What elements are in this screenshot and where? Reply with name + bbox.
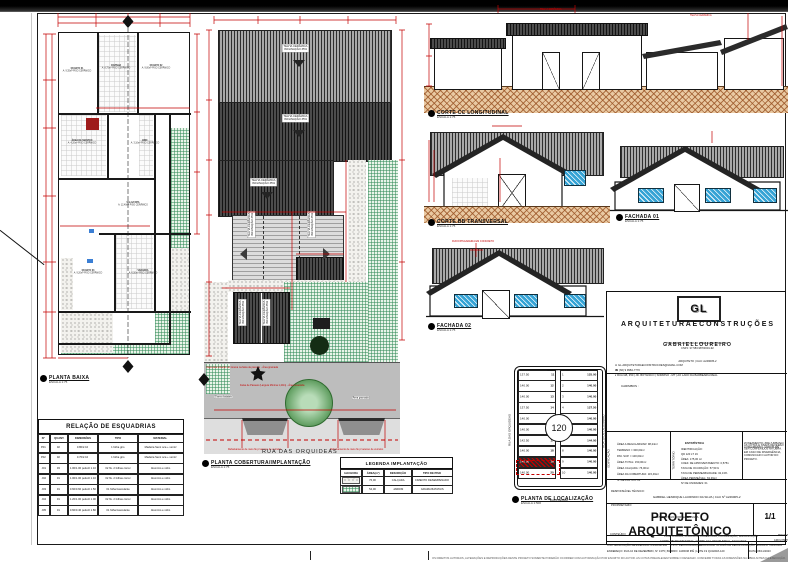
legend-cell: 54,00	[362, 485, 385, 495]
location-lot: 3140.00	[560, 391, 598, 402]
location-lot: 4127.50	[560, 402, 598, 413]
schedule-cell: 1 folha giro	[98, 453, 139, 464]
section-wall	[434, 46, 502, 90]
schedule-cell: 1.00/1.00 peitoril 1.10	[68, 474, 99, 485]
label-corte-bb: CORTE BB TRANSVERSAL ESCALA 1:75	[428, 219, 508, 233]
garden-strip	[171, 128, 189, 248]
schedule-cell: 02	[50, 453, 69, 464]
schedule-cell: 01 folha basculante	[98, 505, 139, 516]
schedule-row: J02011.00/1.00 peitoril 1.1002 fls. 2 fo…	[38, 474, 184, 485]
tiled-floor	[61, 115, 106, 176]
roof-slope-arrow	[261, 192, 273, 199]
office-logo: GL	[677, 296, 721, 322]
paved-area	[61, 313, 113, 353]
schedule-cell: J04	[38, 495, 51, 506]
room-label: QUARTO 01A: 9,35m² PISO CERÂMICO	[63, 67, 92, 73]
schedule-cell: 1.20/1.00 peitoril 1.00	[68, 495, 99, 506]
roof-site-plan	[204, 28, 400, 453]
roof-note-chip: TELHA CERÂMICAINCLINAÇÃO 35%	[262, 299, 270, 326]
street-top: RUA MATRINCHA	[514, 358, 604, 376]
location-lot: 8140.00	[560, 446, 598, 457]
title-block: GL A R Q U I T E T U R A E C O N S T R U…	[606, 291, 786, 545]
schedule-cell: P02	[38, 453, 51, 464]
edificacao-data: ÁREA A REGULARIZAR: 98,24m²TERRENO = 300…	[617, 434, 669, 476]
paved-area	[61, 258, 73, 310]
paved-area	[204, 282, 228, 362]
schedule-body: P01020.80/2.101 folha giroMadeira Semi o…	[38, 442, 184, 516]
label-bullet-icon	[202, 460, 209, 467]
schedule-cell: 02 fls. 2 folhas correr	[98, 495, 139, 506]
quadra-circle: 120	[545, 414, 573, 442]
schedule-cell: 1 folha giro	[98, 442, 139, 453]
schedule-cell: 01 folha basculante	[98, 484, 139, 495]
schedule-table: RELAÇÃO DE ESQUADRIAS NºQUANT.DIMENSÕEST…	[38, 419, 184, 516]
schedule-cell: 0.60/0.60 peitoril 1.50	[68, 484, 99, 495]
label-planta-baixa: PLANTA BAIXA ESCALA 1:75	[40, 375, 89, 389]
schedule-cell: J03	[38, 484, 51, 495]
elevation-01	[610, 136, 788, 214]
room-label: COZINHAA: 8,75m² PISO CERÂMICO	[102, 64, 131, 70]
section-bb	[424, 122, 610, 222]
schedule-row: J04011.20/1.00 peitoril 1.0002 fls. 2 fo…	[38, 495, 184, 506]
roof-band	[218, 160, 334, 217]
section-door	[542, 52, 560, 90]
section-cc	[424, 12, 788, 114]
legend-cell: JARDIM	[384, 485, 413, 495]
location-lot: 140.0018	[518, 446, 556, 457]
edificacao-label: EDIFICAÇÃO	[608, 449, 611, 467]
roof-slope-arrow	[323, 248, 330, 260]
roof-note-chip: TELHA CERÂMICAINCLINAÇÃO 35%	[307, 211, 315, 238]
stamps-label: CARIMBOS :	[621, 376, 656, 394]
schedule-cell: 01	[50, 474, 69, 485]
tiled-floor	[139, 115, 153, 176]
label-planta-localizacao: PLANTA DE LOCALIZAÇÃO ESCALA 1:500	[512, 496, 593, 510]
location-lot: 2140.00	[560, 380, 598, 391]
fixture	[87, 259, 93, 263]
schedule-cell: P01	[38, 442, 51, 453]
architect-name: G A B R I E L L O U R E I R O	[607, 342, 787, 348]
sheet-edge-line	[31, 13, 32, 545]
roof-note-chip: TELHA CERÂMICAINCLINAÇÃO 35%	[282, 44, 309, 52]
legend-swatch-cell	[340, 485, 363, 495]
legend-table: LEGENDA IMPLANTAÇÃO HACHURAÁREA(m²)DESCR…	[340, 457, 453, 494]
driveway-ramp	[242, 418, 288, 435]
label-bullet-icon	[428, 110, 435, 117]
ridge-note: RUFO/PINGADEIRA EM CONCRETO	[452, 240, 494, 243]
label-bullet-icon	[512, 496, 519, 503]
label-bullet-icon	[616, 214, 623, 221]
fixture	[89, 229, 94, 233]
highlight-block	[86, 118, 99, 130]
territorio-data: IDENTIFICAÇÃO:QD 120 LT 19ÁREA: 175,00 m…	[681, 439, 741, 477]
legend-swatch	[342, 477, 360, 484]
entry-door	[482, 290, 510, 319]
section-wall	[724, 38, 784, 90]
room-label: SALA/COPAA: 12,40m² PISO CERÂMICO	[118, 201, 148, 207]
data-cell: DATA: 06/11/2023	[749, 541, 787, 559]
window	[564, 294, 586, 308]
schedule-row: P01020.80/2.101 folha giroMadeira Semi o…	[38, 442, 184, 453]
dark-circle	[310, 336, 329, 355]
roof-note-red: TELHA CERÂMICA	[540, 8, 562, 11]
section-door	[582, 52, 600, 90]
label-bullet-icon	[428, 323, 435, 330]
room-label: BWCA: 3,10m² PISO CERÂMICO	[131, 139, 160, 145]
schedule-title: RELAÇÃO DE ESQUADRIAS	[38, 419, 184, 434]
schedule-cell: 02 fls. 2 folhas correr	[98, 474, 139, 485]
roof-slope-arrow	[293, 130, 305, 137]
room-label: ÁREA DE SERVIÇOA: 4,20m² PISO CERÂMICO	[68, 139, 97, 145]
legend-cell: GRAMA BATATAIS	[412, 485, 454, 495]
tiled-floor	[99, 35, 136, 112]
endereco-cell: ENDEREÇO: RUA 10 DE DEZEMBRO, Nº 1375 | …	[607, 541, 749, 559]
street-left: RUA DAS ORQUIDEAS	[509, 414, 512, 446]
roof-note-chip: TELHA CERÂMICAINCLINAÇÃO 35%	[247, 211, 255, 238]
schedule-row: J01031.00/1.00 peitoril 1.1002 fls. 2 fo…	[38, 463, 184, 474]
label-bullet-icon	[40, 375, 47, 382]
sheet-number: 1/1	[753, 512, 787, 521]
schedule-cell: J05	[38, 505, 51, 516]
site-note: Grama batatais	[214, 395, 233, 399]
schedule-row: J05010.60/0.40 peitoril 1.8001 folha bas…	[38, 505, 184, 516]
location-lot: 137.5014	[518, 402, 556, 413]
street-name: RUA DAS ORQUIDEAS	[262, 449, 338, 455]
location-lot: 10140.00	[560, 468, 598, 479]
elevation-02	[424, 236, 608, 322]
legend-body: 76,00CALÇADACIMENTO DESEMPENADO54,00JARD…	[340, 476, 453, 494]
territorio-label: TERRITÓRIO	[673, 451, 676, 470]
roof-note-red: TELHA CERÂMICA	[690, 14, 712, 17]
section-wall	[512, 34, 642, 90]
schedule-cell: Madeira Semi oca + verniz	[138, 442, 185, 453]
schedule-cell: Madeira Semi oca + verniz	[138, 453, 185, 464]
schedule-cell: 1.00/1.00 peitoril 1.10	[68, 463, 99, 474]
section-wall	[646, 52, 718, 90]
roof-slope-arrow	[240, 248, 247, 260]
label-bullet-icon	[428, 219, 435, 226]
legend-swatch	[342, 486, 360, 493]
schedule-cell: 02 fls. 2 folhas correr	[98, 463, 139, 474]
floor-plan	[58, 32, 190, 355]
roof-slope-arrow	[293, 60, 305, 67]
location-lot: 140.0012	[518, 380, 556, 391]
roof-note-chip: TELHA CERÂMICAINCLINAÇÃO 35%	[282, 114, 309, 122]
window	[564, 170, 586, 186]
window	[454, 294, 478, 308]
roof-note-chip: TELHA CERÂMICAINCLINAÇÃO 35%	[250, 178, 277, 186]
roof-band	[218, 30, 392, 104]
schedule-cell: J02	[38, 474, 51, 485]
schedule-row: J03010.60/0.60 peitoril 1.5001 folha bas…	[38, 484, 184, 495]
site-note: Faixa de Passeio (Largura Mínima 1,20m) …	[240, 384, 304, 387]
schedule-cell: 0.80/2.10	[68, 442, 99, 453]
schedule-cell: Alumínio e vidro	[138, 495, 185, 506]
room-label: VARANDAA: 6,50m² PISO CERÂMICO	[129, 269, 158, 275]
site-note: Área gramada	[352, 396, 369, 400]
schedule-cell: 0.60/0.40 peitoril 1.80	[68, 505, 99, 516]
legend-title: LEGENDA IMPLANTAÇÃO	[340, 457, 453, 469]
roof-band	[218, 102, 392, 162]
schedule-cell: 01	[50, 505, 69, 516]
label-corte-cc: CORTE CC LONGITUDINAL ESCALA 1:75	[428, 110, 509, 124]
trim-mark	[310, 551, 311, 560]
label-fachada-02: FACHADA 02 ESCALA 1:75	[428, 323, 474, 337]
room-label: QUARTO 03A: 9,20m² PISO CERÂMICO	[74, 269, 103, 275]
room-label: QUARTO 02A: 9,00m² PISO CERÂMICO	[142, 64, 171, 70]
schedule-cell: Alumínio e vidro	[138, 463, 185, 474]
location-lot: 9140.00	[560, 457, 598, 468]
legend-row: 54,00JARDIMGRAMA BATATAIS	[340, 485, 453, 494]
schedule-cell: 03	[50, 463, 69, 474]
schedule-cell: Alumínio e vidro	[138, 474, 185, 485]
schedule-cell: 0.70/2.10	[68, 453, 99, 464]
label-planta-cobertura: PLANTA COBERTURA/IMPLANTAÇÃO ESCALA 1:75	[202, 460, 310, 474]
section-roof	[506, 23, 648, 36]
paved-area	[171, 248, 189, 311]
lot-highlight-outline	[516, 460, 560, 475]
interior-hatch	[452, 178, 488, 208]
driveway-ramp	[338, 418, 385, 435]
site-note: Vaga para locação de Grama na faixa de p…	[206, 366, 278, 369]
side-garden	[368, 160, 398, 390]
schedule-cell: J01	[38, 463, 51, 474]
window	[514, 294, 538, 308]
schedule-cell: 01	[50, 495, 69, 506]
schedule-row: P02020.70/2.101 folha giroMadeira Semi o…	[38, 453, 184, 464]
window	[638, 188, 664, 203]
ground-hatch	[424, 86, 788, 113]
drawing-sheet: QUARTO 01A: 9,35m² PISO CERÂMICO COZINHA…	[0, 0, 788, 562]
site-note: Rebaixamento de meio fio p/ acesso de ve…	[330, 448, 383, 451]
roof-note-chip: TELHA CERÂMICAINCLINAÇÃO 35%	[238, 299, 246, 326]
info-row-2: ENDEREÇO: RUA 10 DE DEZEMBRO, Nº 1375 | …	[607, 541, 787, 546]
schedule-cell: 02	[50, 442, 69, 453]
schedule-cell: 01	[50, 484, 69, 495]
label-fachada-01: FACHADA 01 ESCALA 1:75	[616, 214, 662, 228]
trim-mark	[428, 551, 429, 560]
office-name: A R Q U I T E T U R A E C O N S T R U Ç …	[607, 321, 787, 328]
location-lot: 140.0013	[518, 391, 556, 402]
window-top-bar	[0, 0, 788, 12]
reservoir	[313, 318, 330, 329]
schedule-cell: Alumínio e vidro	[138, 505, 185, 516]
section-roof	[430, 38, 506, 49]
window	[705, 188, 731, 203]
window	[753, 188, 777, 203]
schedule-cell: Alumínio e vidro	[138, 484, 185, 495]
legend-header-row: HACHURAÁREA(m²)DESCRIÇÃOTIPO DE PISO	[340, 469, 453, 477]
entry-door	[674, 184, 700, 212]
